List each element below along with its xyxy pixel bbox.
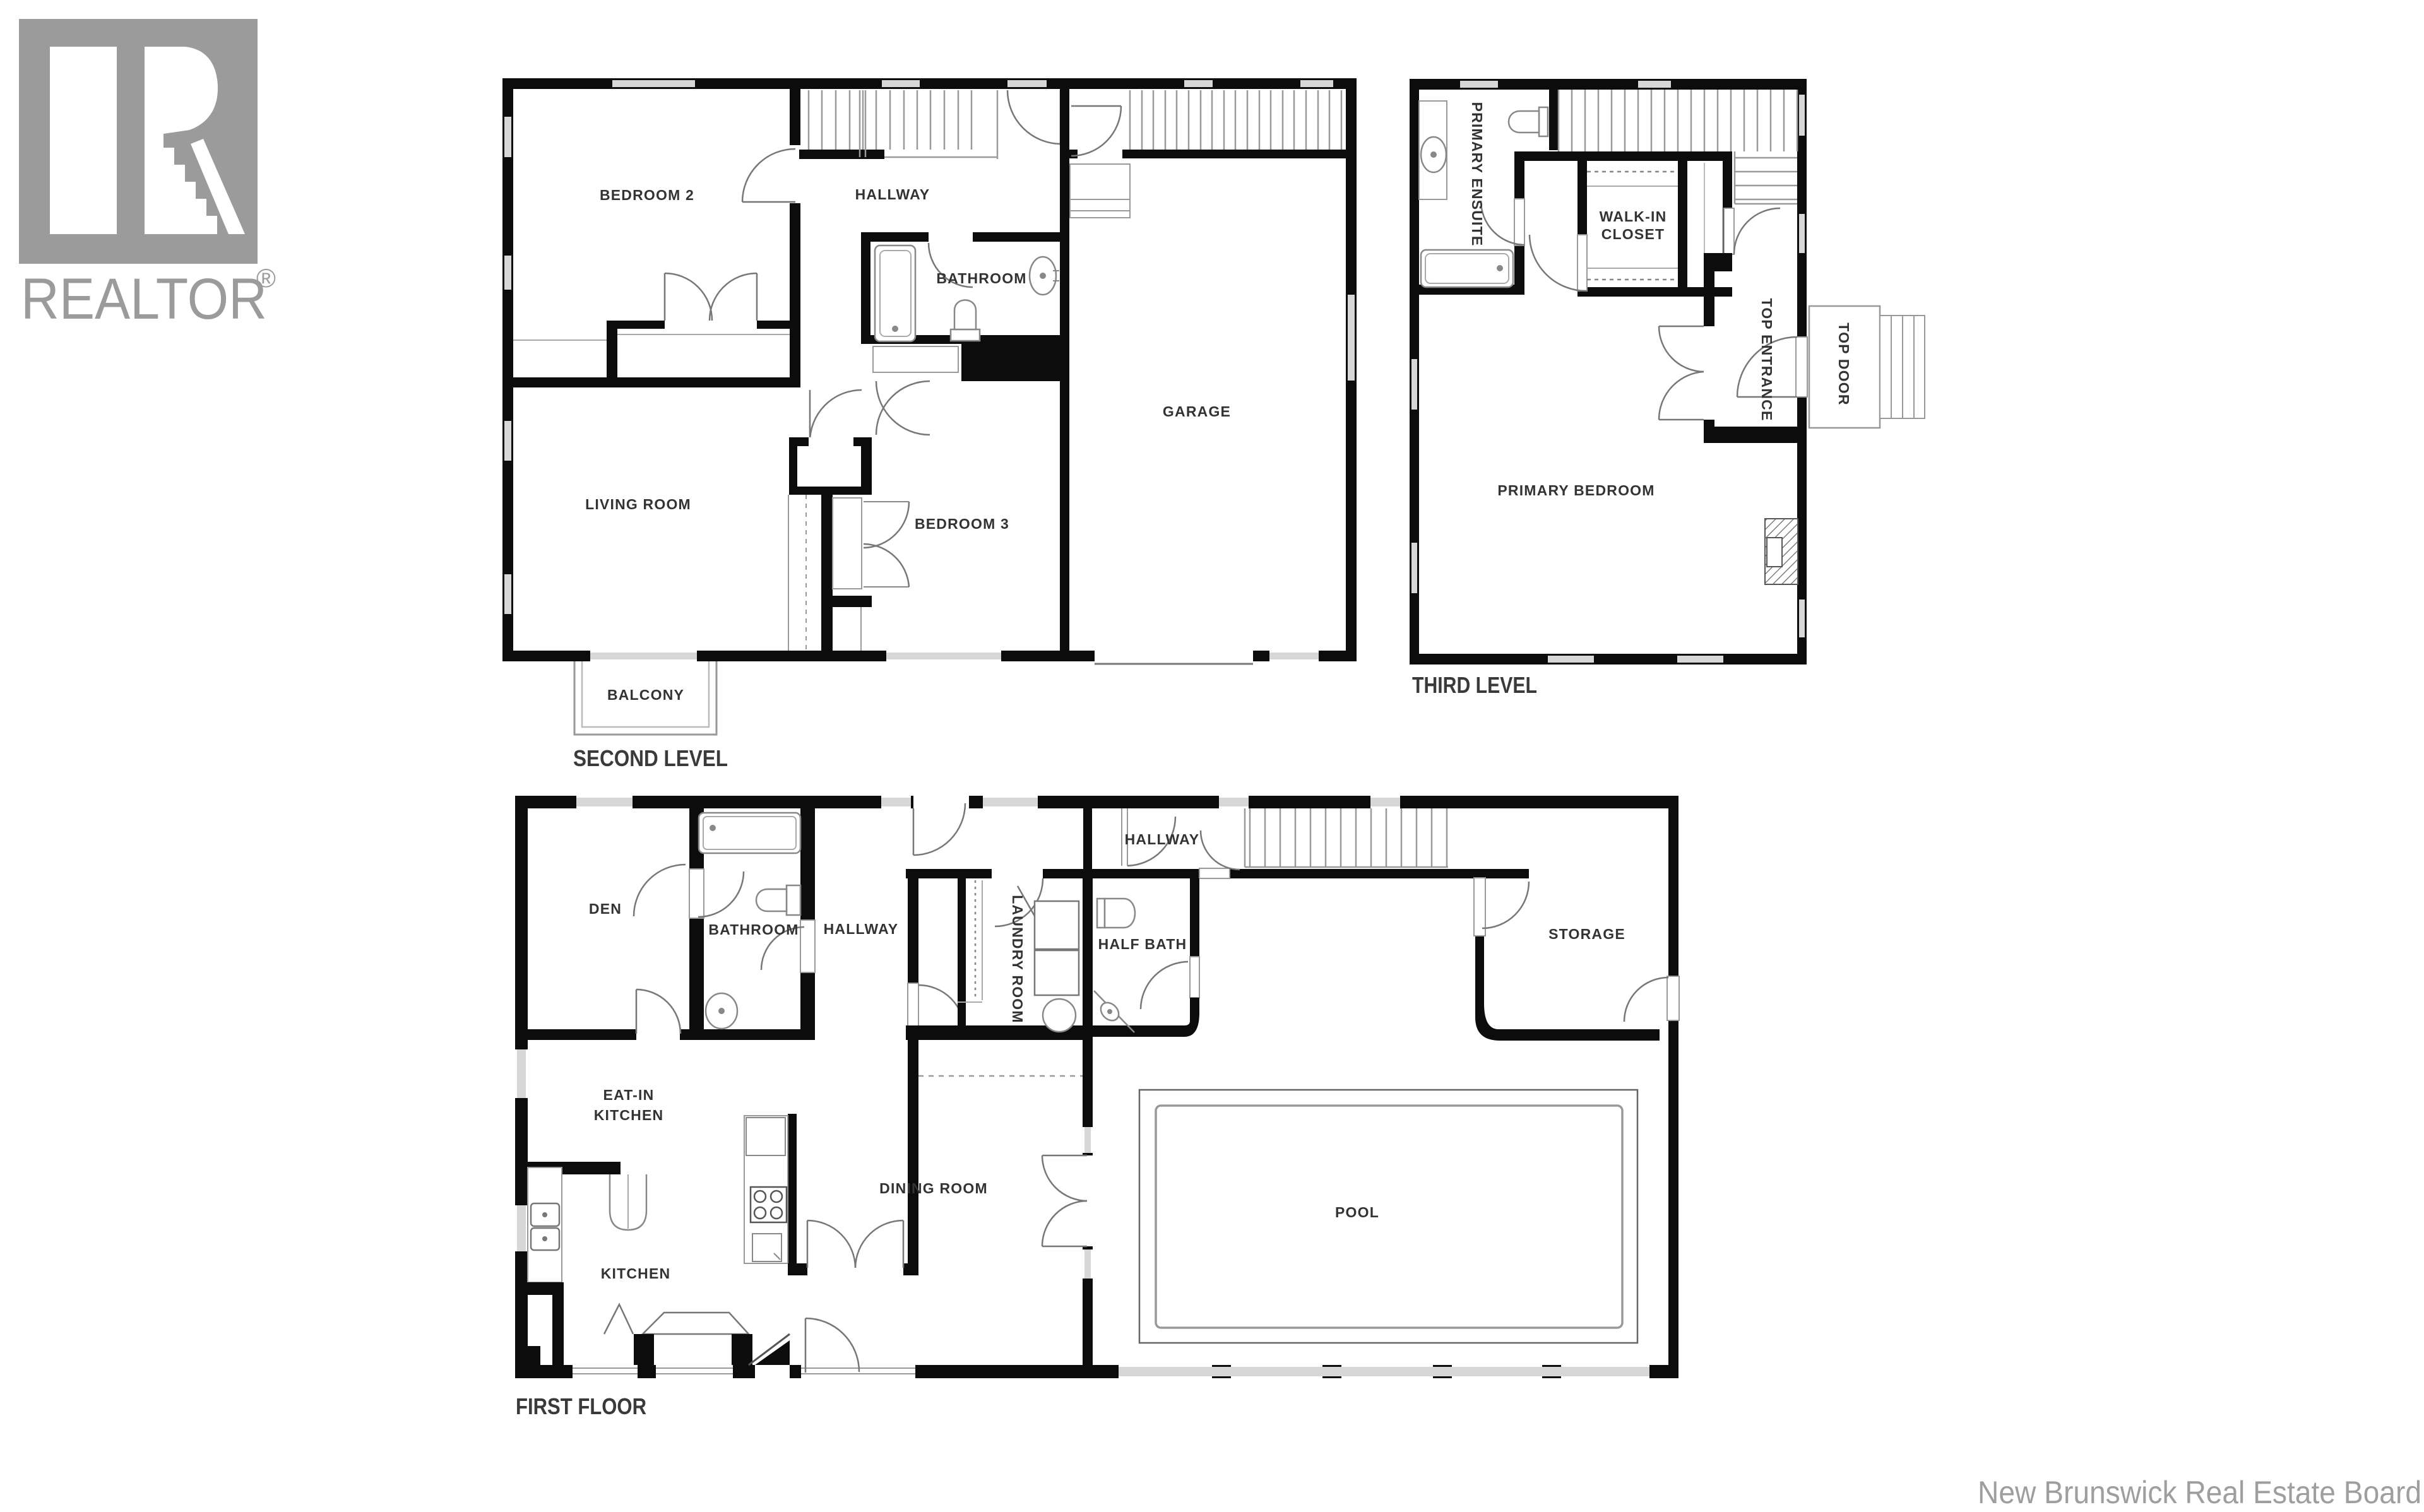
svg-text:BALCONY: BALCONY <box>607 687 684 703</box>
svg-text:SECOND LEVEL: SECOND LEVEL <box>573 745 728 771</box>
svg-text:EAT-IN: EAT-IN <box>603 1087 655 1103</box>
svg-text:HALLWAY: HALLWAY <box>1125 831 1200 848</box>
svg-text:®: ® <box>256 263 276 293</box>
svg-text:TOP ENTRANCE: TOP ENTRANCE <box>1759 298 1775 421</box>
svg-text:DINING ROOM: DINING ROOM <box>879 1180 988 1196</box>
svg-text:BATHROOM: BATHROOM <box>708 921 799 938</box>
svg-text:STORAGE: STORAGE <box>1548 926 1625 942</box>
svg-text:New Brunswick Real Estate Boar: New Brunswick Real Estate Board <box>1978 1475 2421 1510</box>
svg-text:PRIMARY BEDROOM: PRIMARY BEDROOM <box>1497 482 1655 499</box>
svg-text:LIVING ROOM: LIVING ROOM <box>585 496 691 512</box>
svg-text:BEDROOM 2: BEDROOM 2 <box>600 187 694 203</box>
svg-text:CLOSET: CLOSET <box>1601 226 1665 242</box>
svg-text:BEDROOM 3: BEDROOM 3 <box>915 516 1009 532</box>
svg-text:REALTOR: REALTOR <box>21 267 267 331</box>
svg-text:WALK-IN: WALK-IN <box>1600 208 1667 225</box>
svg-text:HALF BATH: HALF BATH <box>1098 936 1187 952</box>
svg-text:DEN: DEN <box>589 901 622 917</box>
svg-text:BATHROOM: BATHROOM <box>936 270 1026 286</box>
svg-text:TOP DOOR: TOP DOOR <box>1836 322 1852 405</box>
svg-text:HALLWAY: HALLWAY <box>855 186 930 203</box>
svg-text:KITCHEN: KITCHEN <box>601 1265 671 1282</box>
svg-text:FIRST FLOOR: FIRST FLOOR <box>516 1393 646 1419</box>
svg-text:POOL: POOL <box>1335 1204 1379 1220</box>
svg-text:THIRD LEVEL: THIRD LEVEL <box>1412 672 1537 698</box>
svg-text:GARAGE: GARAGE <box>1163 403 1231 420</box>
svg-text:LAUNDRY ROOM: LAUNDRY ROOM <box>1009 895 1026 1024</box>
svg-text:KITCHEN: KITCHEN <box>594 1107 664 1123</box>
svg-text:HALLWAY: HALLWAY <box>824 921 899 937</box>
svg-text:PRIMARY ENSUITE: PRIMARY ENSUITE <box>1469 102 1485 247</box>
